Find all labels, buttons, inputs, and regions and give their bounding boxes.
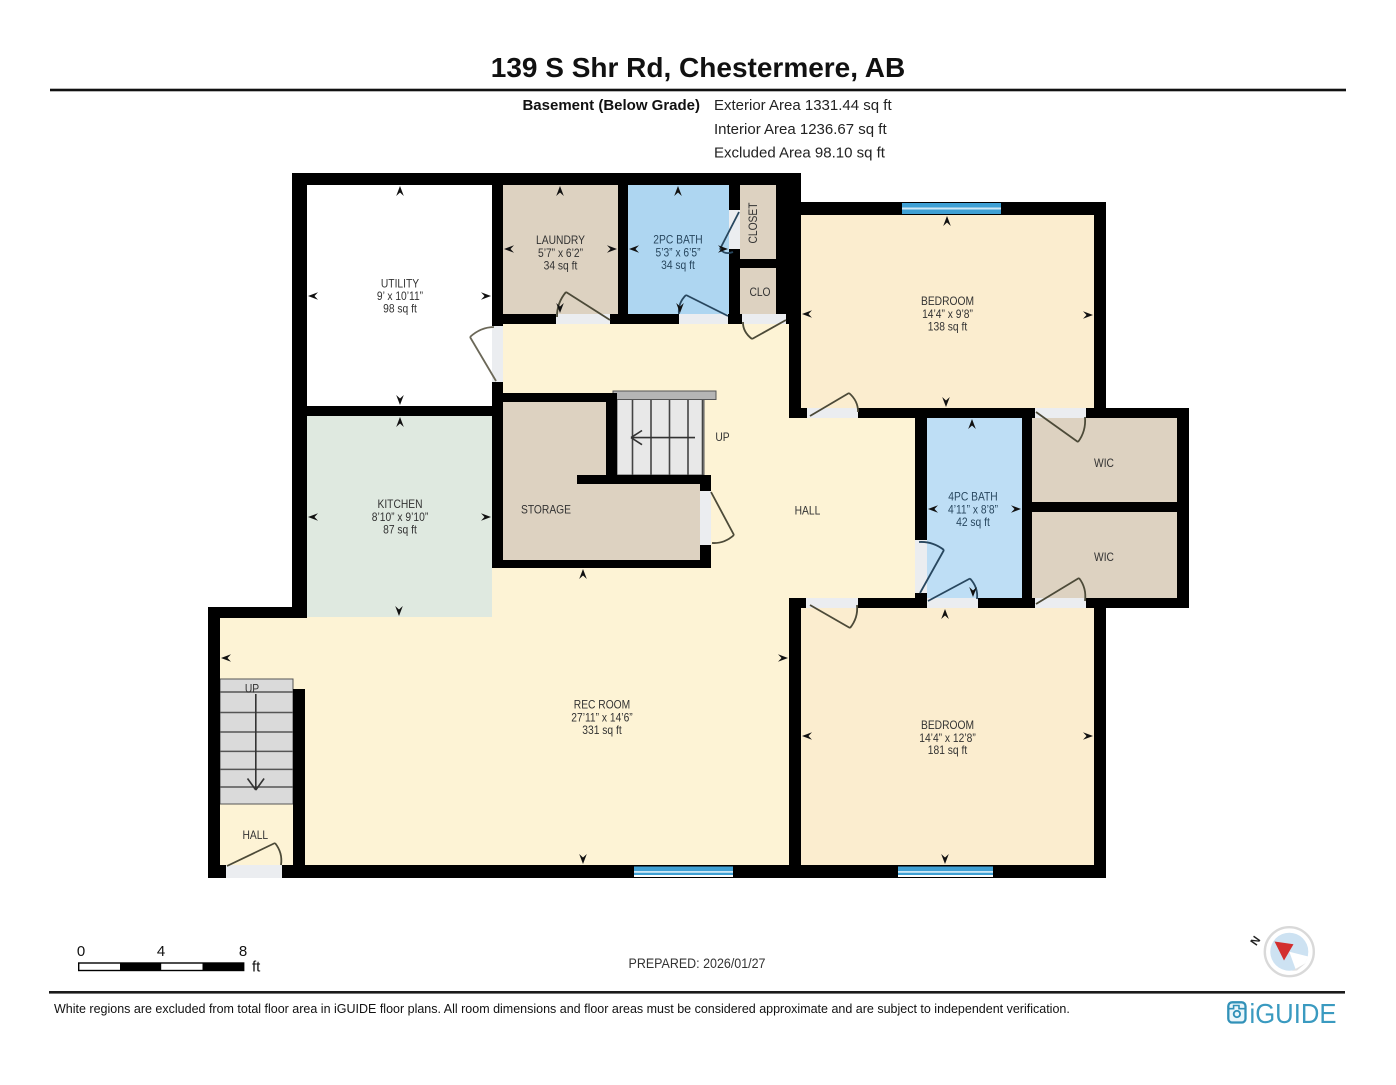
svg-text:WIC: WIC: [1094, 456, 1114, 470]
svg-text:0: 0: [77, 943, 85, 960]
svg-text:34 sq ft: 34 sq ft: [544, 258, 578, 272]
svg-text:Excluded Area 98.10 sq ft: Excluded Area 98.10 sq ft: [714, 145, 886, 162]
svg-text:331 sq ft: 331 sq ft: [582, 723, 622, 737]
svg-text:UP: UP: [715, 430, 729, 444]
svg-text:138 sq ft: 138 sq ft: [928, 319, 968, 333]
svg-text:8: 8: [239, 943, 247, 960]
svg-text:ft: ft: [252, 959, 261, 976]
svg-text:iGUIDE: iGUIDE: [1250, 998, 1337, 1029]
svg-text:CLOSET: CLOSET: [746, 202, 760, 244]
svg-text:STORAGE: STORAGE: [521, 503, 571, 517]
svg-text:98 sq ft: 98 sq ft: [383, 301, 417, 315]
svg-text:UP: UP: [245, 682, 259, 696]
svg-text:N: N: [1249, 934, 1264, 948]
svg-text:CLO: CLO: [749, 285, 770, 299]
svg-text:87 sq ft: 87 sq ft: [383, 522, 417, 536]
svg-text:Interior Area 1236.67 sq ft: Interior Area 1236.67 sq ft: [714, 121, 887, 138]
svg-text:PREPARED: 2026/01/27: PREPARED: 2026/01/27: [629, 956, 766, 971]
svg-text:WIC: WIC: [1094, 550, 1114, 564]
svg-text:139 S Shr Rd, Chestermere, AB: 139 S Shr Rd, Chestermere, AB: [491, 52, 905, 83]
svg-text:34 sq ft: 34 sq ft: [661, 258, 695, 272]
svg-text:181 sq ft: 181 sq ft: [928, 743, 968, 757]
svg-text:4: 4: [157, 943, 165, 960]
svg-text:White regions are excluded fro: White regions are excluded from total fl…: [54, 1002, 1070, 1016]
svg-text:Basement (Below Grade): Basement (Below Grade): [522, 97, 700, 114]
svg-text:HALL: HALL: [242, 828, 268, 842]
svg-text:Exterior Area 1331.44 sq ft: Exterior Area 1331.44 sq ft: [714, 97, 892, 114]
svg-text:HALL: HALL: [795, 503, 821, 517]
svg-text:42 sq ft: 42 sq ft: [956, 515, 990, 529]
